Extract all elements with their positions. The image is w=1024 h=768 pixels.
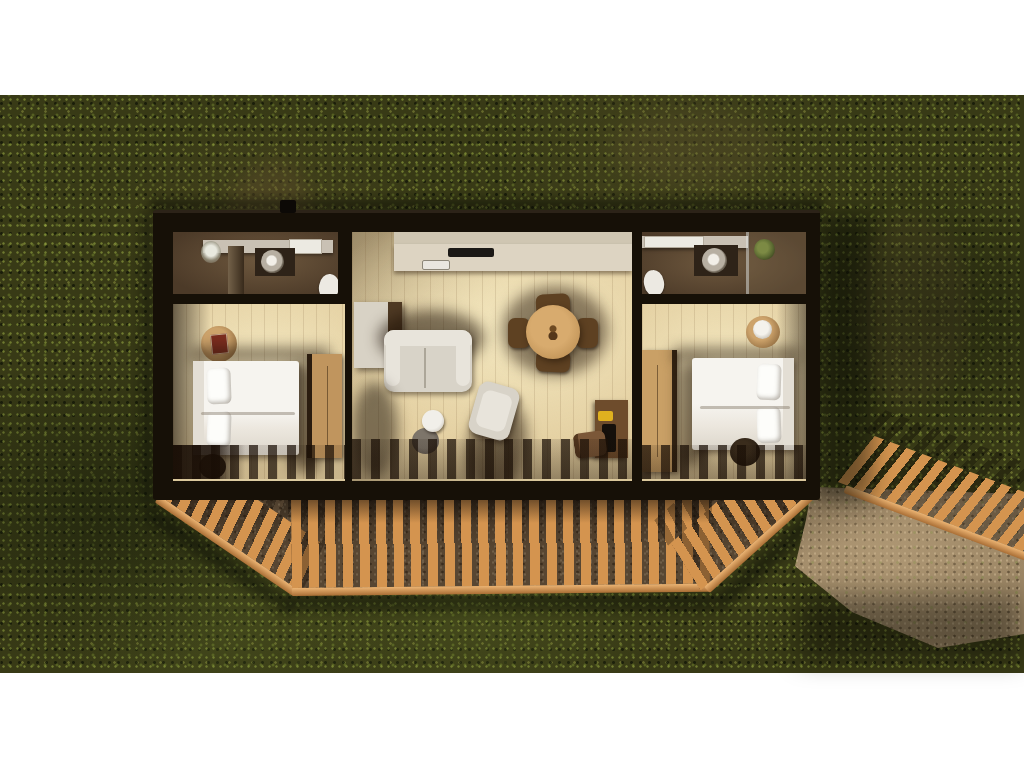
pillow <box>206 368 231 405</box>
sofa-armrest <box>456 334 470 386</box>
room-bedroom-right <box>642 304 806 481</box>
toilet <box>642 268 666 294</box>
cooktop <box>448 248 494 257</box>
fence-shadow-on-grass <box>285 595 715 610</box>
earth-streak <box>610 110 780 185</box>
double-bed <box>692 358 794 450</box>
side-table-top <box>422 410 444 432</box>
building-shadow-right <box>816 214 872 500</box>
toilet <box>317 273 338 294</box>
upper-cabinets <box>394 232 632 244</box>
baluster-light-stripes <box>173 445 345 479</box>
path-edge-shadow <box>800 595 1020 660</box>
wardrobe-seam <box>327 366 328 445</box>
baluster-light-stripes <box>642 445 806 479</box>
building-footprint <box>153 210 820 500</box>
table-centerpiece <box>548 324 558 340</box>
kitchen-sink <box>422 260 450 270</box>
headboard <box>193 361 204 455</box>
round-sink <box>261 250 284 273</box>
sofa-armrest <box>386 334 400 386</box>
sofa <box>384 330 472 392</box>
room-living-kitchen <box>352 232 632 481</box>
round-dining-table <box>526 305 580 359</box>
bedside-lamp <box>753 320 772 339</box>
pillow <box>206 411 231 448</box>
sofa-cushion-seam <box>424 348 426 388</box>
desk-lamp-yellow <box>598 411 613 421</box>
pillow <box>756 407 781 444</box>
room-bathroom-left <box>173 232 338 294</box>
pillow <box>756 364 781 401</box>
fence-segment-bottom <box>292 588 710 592</box>
partition-wall <box>228 246 244 294</box>
armchair-cushion <box>474 389 513 434</box>
wardrobe <box>307 354 342 458</box>
baluster-light-stripes <box>352 439 632 479</box>
room-bathroom-right <box>642 232 806 294</box>
chimney-vent <box>280 200 296 213</box>
plant <box>754 239 775 260</box>
double-bed <box>193 361 299 455</box>
room-bedroom-left <box>173 304 345 481</box>
duvet-fold <box>201 412 294 415</box>
wardrobe-seam <box>657 365 658 458</box>
rendered-floorplan-scene <box>0 0 1024 768</box>
round-sink <box>702 248 727 273</box>
orchid-plant <box>201 241 221 263</box>
building-shadow-on-terrace <box>288 497 712 523</box>
duvet-fold <box>700 406 790 409</box>
headboard <box>783 358 794 450</box>
